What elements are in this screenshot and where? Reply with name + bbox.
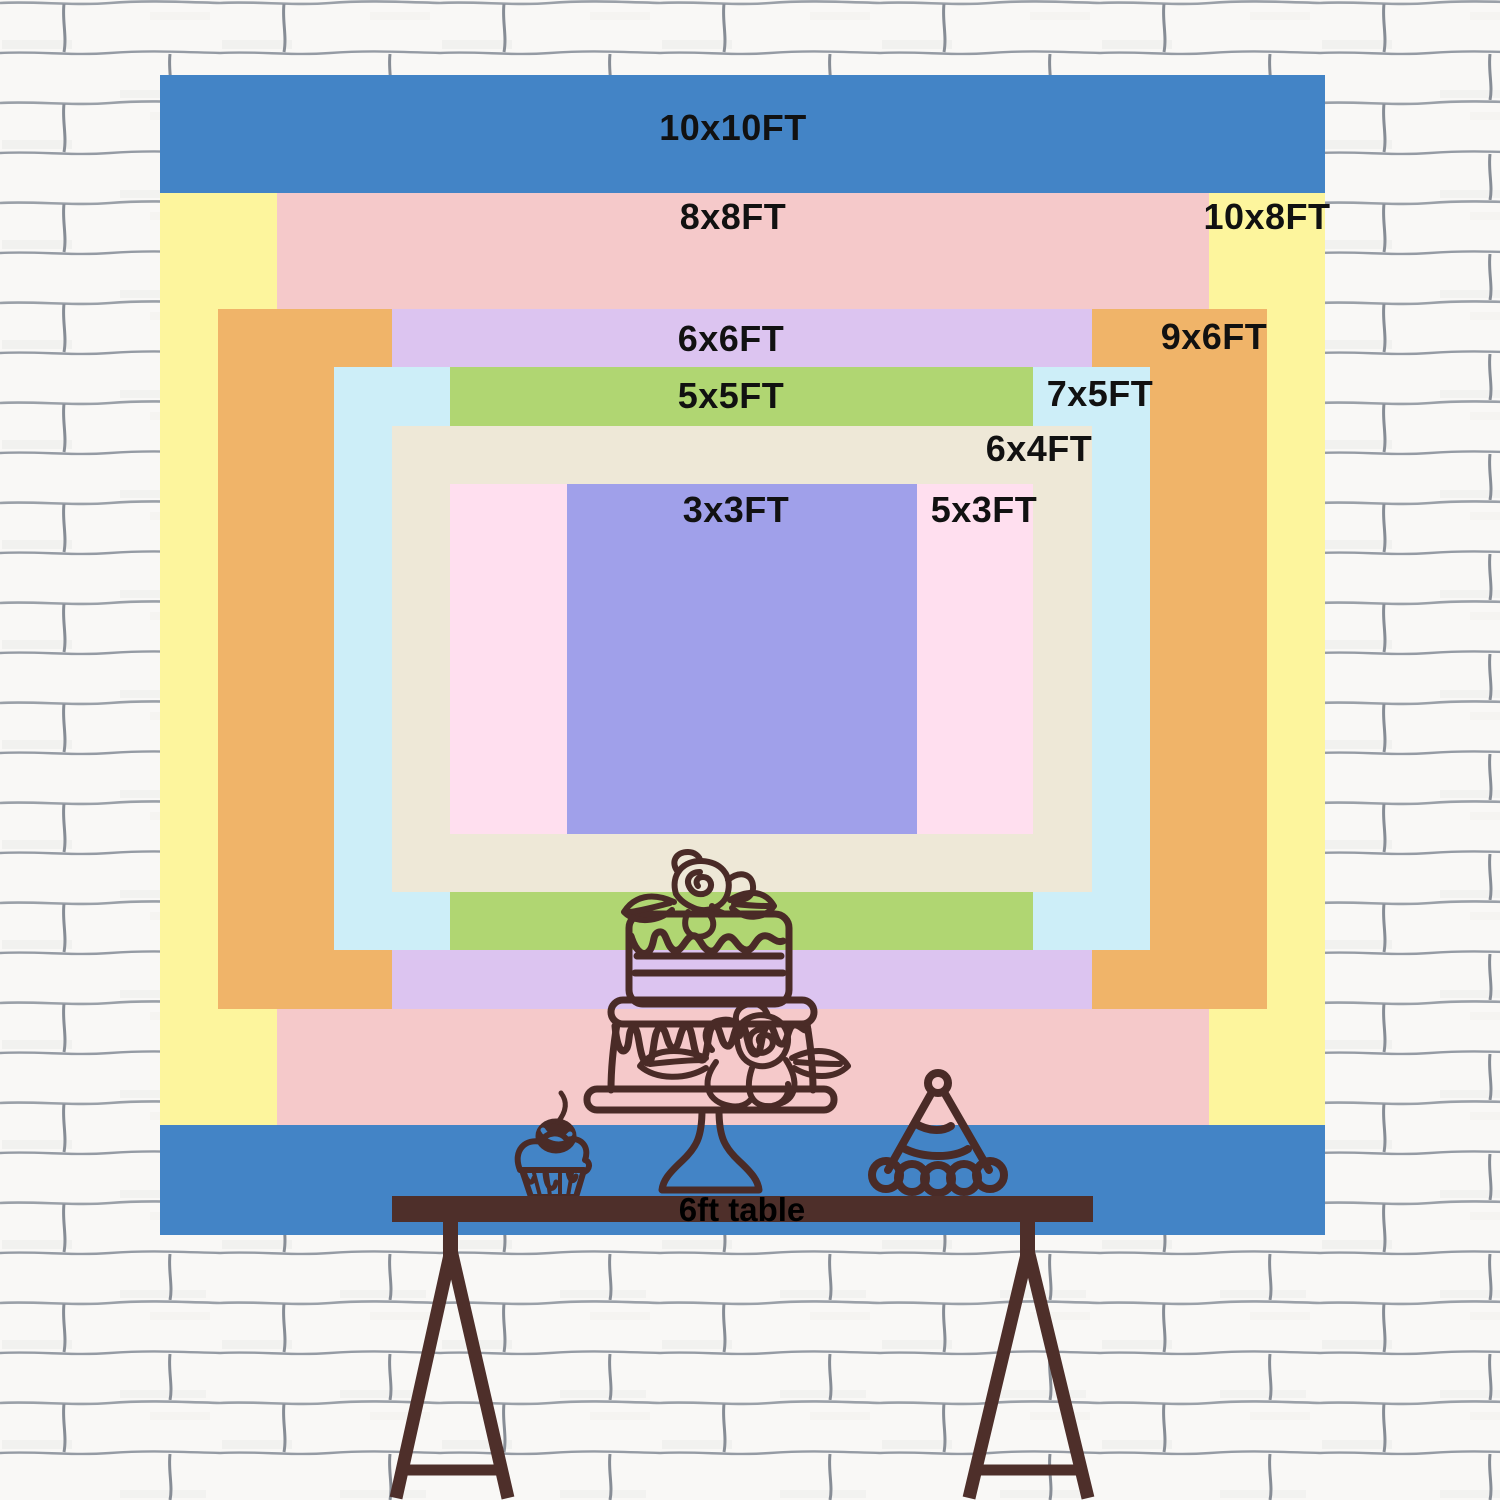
- label-8x8ft: 8x8FT: [680, 196, 787, 238]
- label-10x8ft: 10x8FT: [1203, 196, 1330, 238]
- table-label: 6ft table: [679, 1191, 806, 1229]
- label-7x5ft: 7x5FT: [1047, 373, 1154, 415]
- label-10x10ft: 10x10FT: [659, 107, 807, 149]
- label-9x6ft: 9x6FT: [1161, 316, 1268, 358]
- label-3x3ft: 3x3FT: [683, 489, 790, 531]
- label-6x6ft: 6x6FT: [678, 318, 785, 360]
- label-6x4ft: 6x4FT: [986, 428, 1093, 470]
- label-5x3ft: 5x3FT: [931, 489, 1038, 531]
- label-5x5ft: 5x5FT: [678, 375, 785, 417]
- backdrop-size-chart: 10x10FT 10x8FT 8x8FT 9x6FT 6x6FT 7x5FT 5…: [0, 0, 1500, 1500]
- layer-3x3ft: [567, 484, 917, 834]
